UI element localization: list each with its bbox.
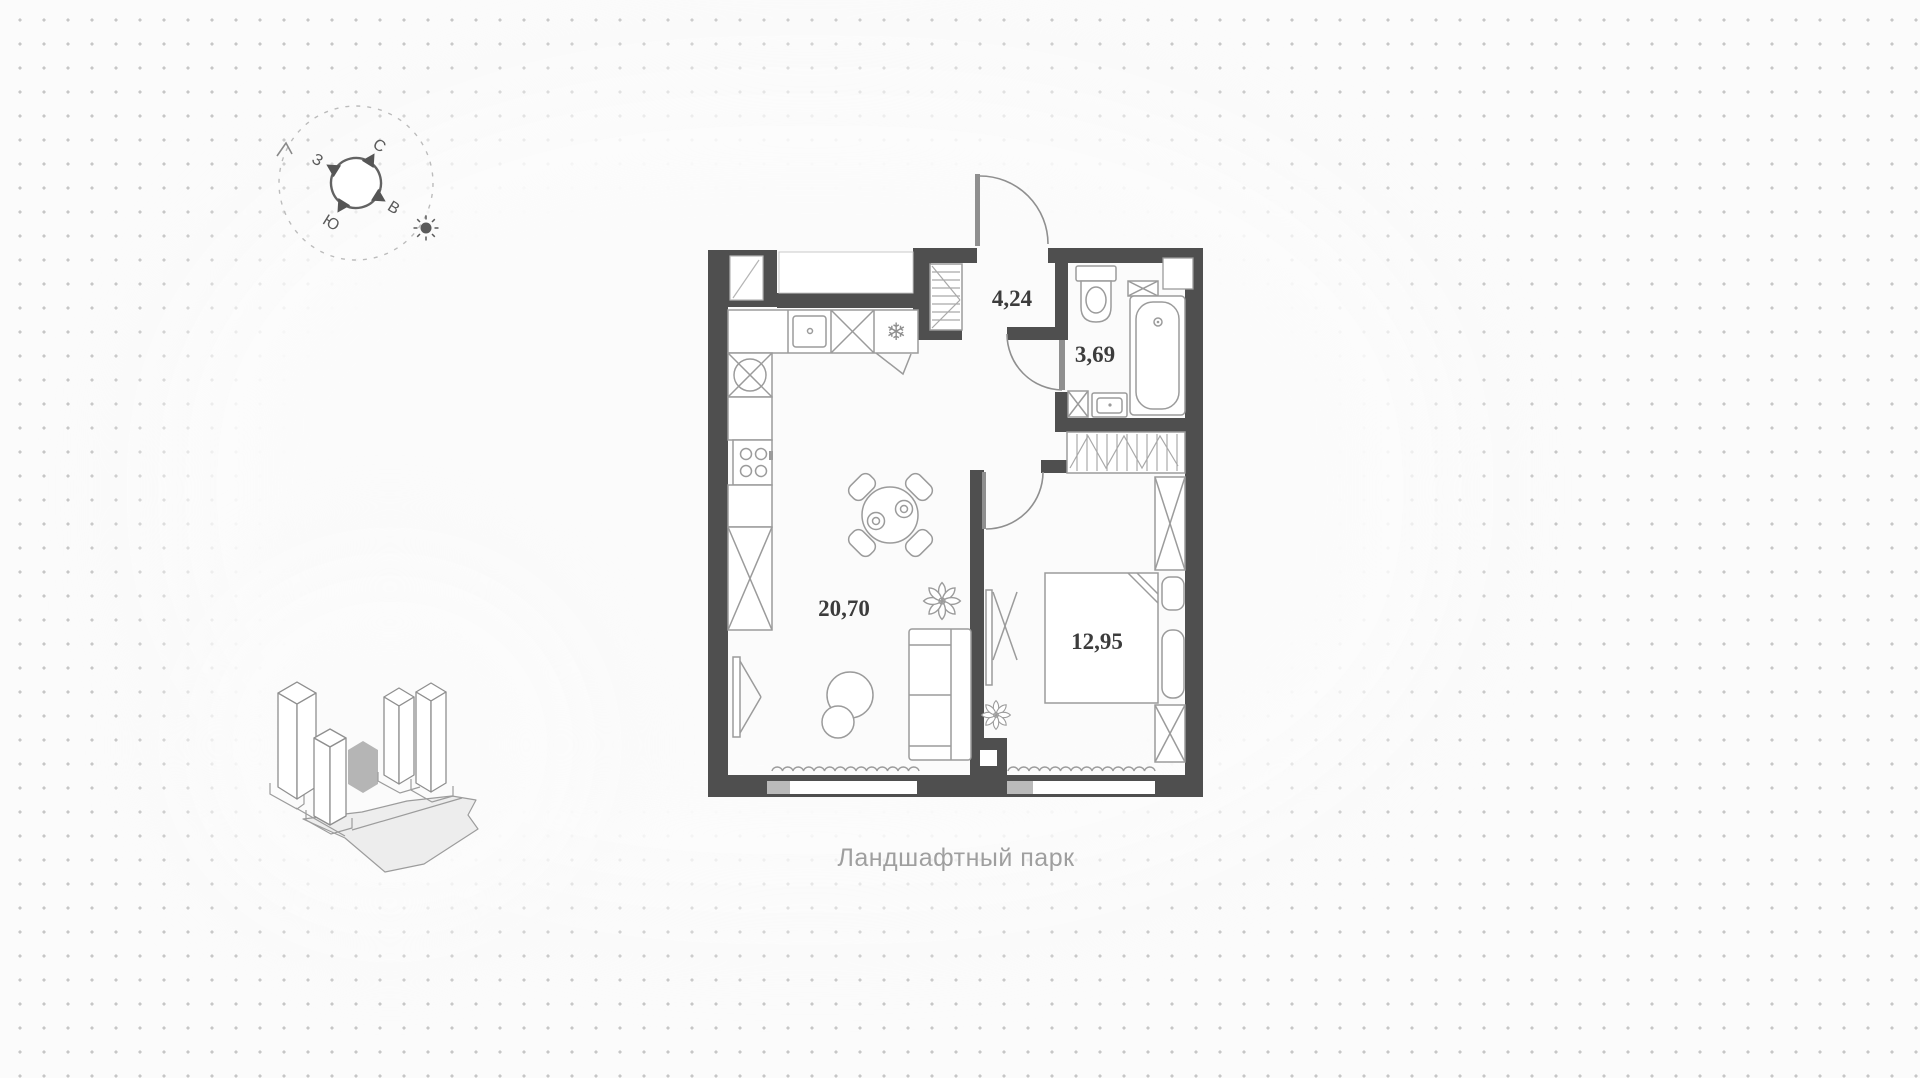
living-area-label: 20,70 [818,596,870,621]
hallway-closet [930,264,962,330]
compass-north-label: С [370,136,389,157]
hallway-area-label: 4,24 [992,286,1033,311]
floor-plan-scene: С В Ю З [0,0,1920,1078]
bathroom-door [1007,334,1065,390]
sofa [909,629,971,760]
tall-wardrobe [728,527,772,630]
pillow [1162,577,1184,610]
bedroom [982,432,1185,762]
bedroom-door [982,472,1043,529]
bedroom-wardrobe-hatched [1067,432,1185,473]
washer-box [1068,391,1088,417]
plant-icon [924,583,961,620]
park-caption: Ландшафтный парк [837,844,1075,872]
site-plan-icon [270,682,478,872]
fridge-snowflake-icon: ❄ [886,318,906,346]
fridge-door-swing [876,353,911,374]
pouf-small [822,706,854,738]
entrance-door [975,174,1048,246]
bathroom-sink [1092,393,1127,417]
bedroom-area-label: 12,95 [1071,629,1123,654]
living-window-curtain [772,767,919,771]
compass-rose-icon: С В Ю З [277,106,439,260]
sun-icon [414,216,439,241]
tv-panel-living [733,657,761,737]
dining-set [846,471,936,560]
kitchen-cabinet [728,485,772,527]
compass-west-label: З [308,151,325,171]
bedroom-window-curtain [1008,767,1155,771]
bathtub [1130,296,1185,415]
washing-machine [728,353,772,397]
vent-box [1128,281,1158,296]
kitchen-cabinet [728,397,772,440]
wardrobe-x-bottom [1155,705,1185,762]
compass-south-label: Ю [319,212,342,235]
tv-panel-bedroom [986,590,1017,685]
highlighted-building [348,741,378,793]
floor-plan: ❄ [708,174,1203,797]
page: С В Ю З [0,0,1920,1078]
bathroom-area-label: 3,69 [1075,342,1115,367]
pillow [1162,630,1184,698]
toilet [1076,266,1116,322]
stove [733,440,773,485]
compass-east-label: В [384,198,402,218]
wardrobe-x-top [1155,477,1185,570]
plant-icon [982,701,1011,730]
kitchen-left-column [728,353,773,737]
